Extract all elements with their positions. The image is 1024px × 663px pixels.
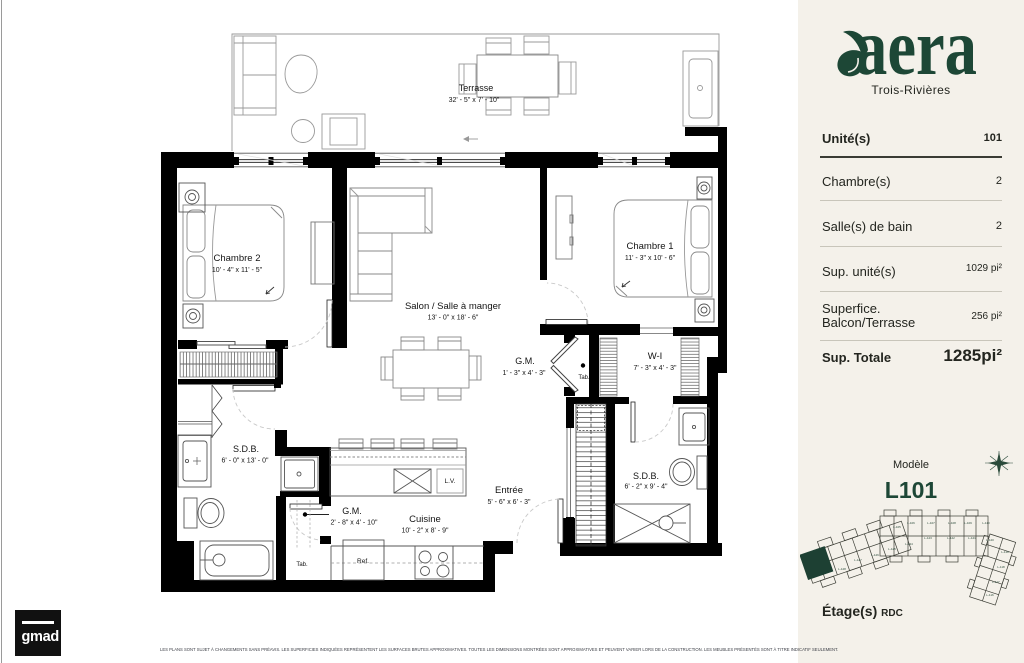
svg-text:L-105: L-105 (893, 525, 901, 529)
svg-text:Salon / Salle à manger: Salon / Salle à manger (405, 301, 501, 312)
svg-text:G.M.: G.M. (515, 356, 535, 366)
svg-text:L-128: L-128 (838, 567, 846, 571)
svg-text:L-107: L-107 (927, 521, 935, 525)
svg-text:1' - 3" x 4' - 3": 1' - 3" x 4' - 3" (502, 370, 546, 377)
svg-text:2' - 8" x 4' - 10": 2' - 8" x 4' - 10" (331, 520, 378, 527)
svg-text:Cuisine: Cuisine (409, 514, 441, 525)
svg-text:aera: aera (855, 18, 977, 80)
svg-text:L.V.: L.V. (445, 478, 456, 485)
svg-text:Ref.: Ref. (357, 558, 369, 565)
svg-text:7' - 3" x 4' - 3": 7' - 3" x 4' - 3" (633, 365, 677, 372)
svg-text:10' - 2" x 8' - 9": 10' - 2" x 8' - 9" (402, 528, 449, 535)
svg-text:S.D.B.: S.D.B. (233, 444, 259, 454)
svg-text:6' - 2" x 9' - 4": 6' - 2" x 9' - 4" (624, 484, 668, 491)
svg-text:11' - 3" x 10' - 6": 11' - 3" x 10' - 6" (625, 255, 676, 262)
svg-text:L-119: L-119 (1001, 550, 1009, 554)
svg-text:W-I: W-I (648, 351, 663, 362)
svg-text:10' - 4" x 11' - 5": 10' - 4" x 11' - 5" (212, 267, 263, 274)
svg-text:L-127: L-127 (854, 558, 862, 562)
svg-text:L-116: L-116 (986, 593, 994, 597)
svg-text:L-121: L-121 (968, 536, 976, 540)
svg-text:L-118: L-118 (997, 565, 1005, 569)
svg-text:L-124: L-124 (905, 542, 913, 546)
svg-text:5' - 6" x 6' - 3": 5' - 6" x 6' - 3" (487, 499, 531, 506)
svg-text:Entrée: Entrée (495, 485, 523, 496)
svg-text:L-110: L-110 (982, 521, 990, 525)
svg-text:L-109: L-109 (964, 521, 972, 525)
svg-text:L-106: L-106 (907, 521, 915, 525)
svg-text:Chambre 1: Chambre 1 (627, 241, 674, 252)
svg-text:Chambre 2: Chambre 2 (214, 253, 261, 264)
svg-text:L-120: L-120 (986, 538, 994, 542)
svg-text:Terrasse: Terrasse (459, 83, 494, 93)
svg-text:32' - 5" x 7' - 10": 32' - 5" x 7' - 10" (449, 97, 500, 104)
svg-text:L-117: L-117 (992, 580, 1000, 584)
svg-text:L-108: L-108 (948, 521, 956, 525)
svg-text:L-123: L-123 (924, 536, 932, 540)
svg-text:L-122: L-122 (947, 536, 955, 540)
svg-text:6' - 0" x 13' - 0": 6' - 0" x 13' - 0" (222, 458, 269, 465)
svg-text:Tab.: Tab. (578, 375, 590, 381)
svg-text:L-125: L-125 (888, 547, 896, 551)
svg-text:S.D.B.: S.D.B. (633, 471, 659, 481)
svg-text:13' - 0" x 18' - 6": 13' - 0" x 18' - 6" (428, 315, 479, 322)
svg-text:Tab.: Tab. (296, 562, 308, 568)
svg-text:G.M.: G.M. (342, 506, 362, 516)
svg-text:L-126: L-126 (871, 553, 879, 557)
